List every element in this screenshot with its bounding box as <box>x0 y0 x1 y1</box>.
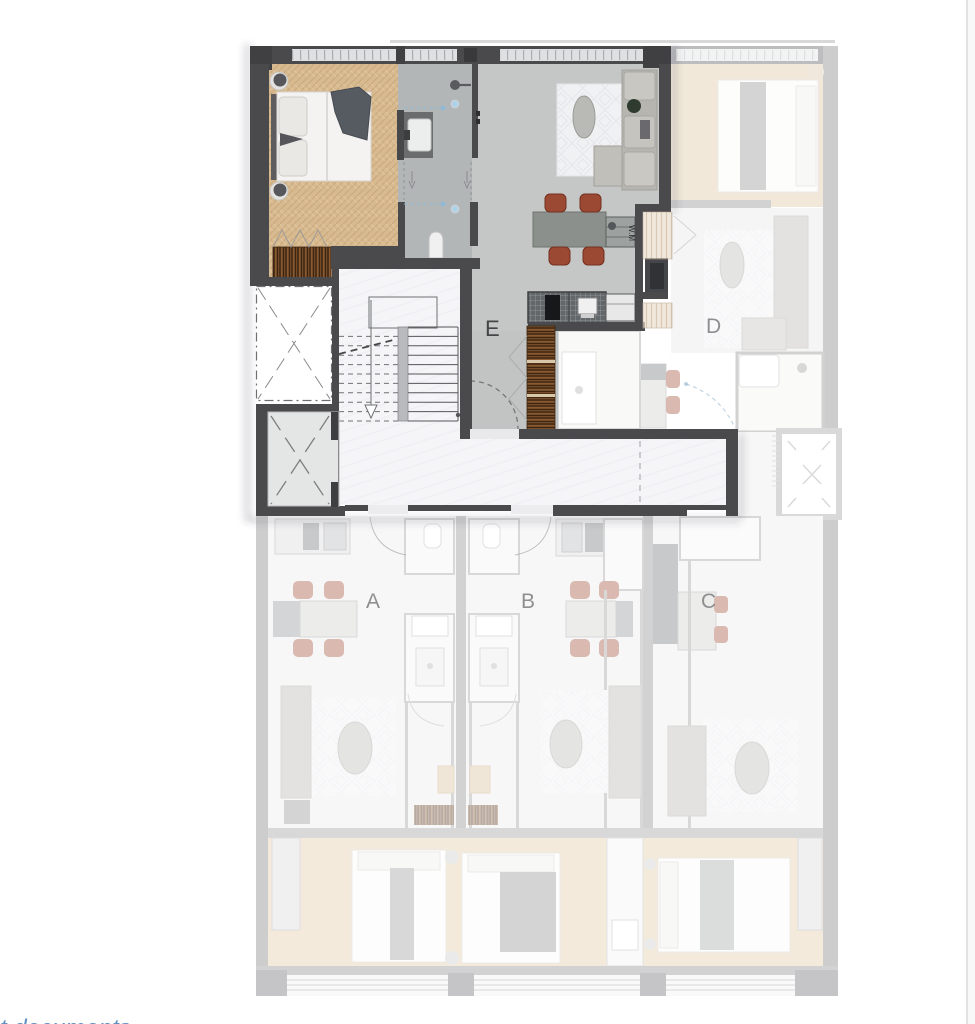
svg-text:E: E <box>485 316 500 341</box>
svg-text:W.M: W.M <box>627 225 636 241</box>
svg-text:t documents: t documents <box>0 1015 131 1024</box>
svg-text:B: B <box>521 590 535 613</box>
svg-text:C: C <box>701 590 716 613</box>
svg-text:A: A <box>366 590 380 613</box>
svg-text:D: D <box>706 315 721 338</box>
